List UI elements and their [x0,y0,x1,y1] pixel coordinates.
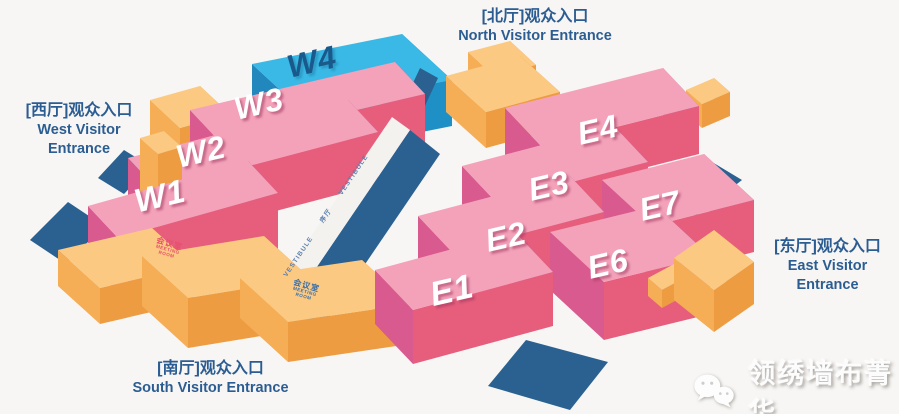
exhibition-map-canvas [0,0,899,414]
plaza-pad-southeast [488,340,608,410]
exhibition-floor-map: W1W2W3W4E1E2E3E4E6E7 [北厅]观众入口 North Visi… [0,0,899,414]
